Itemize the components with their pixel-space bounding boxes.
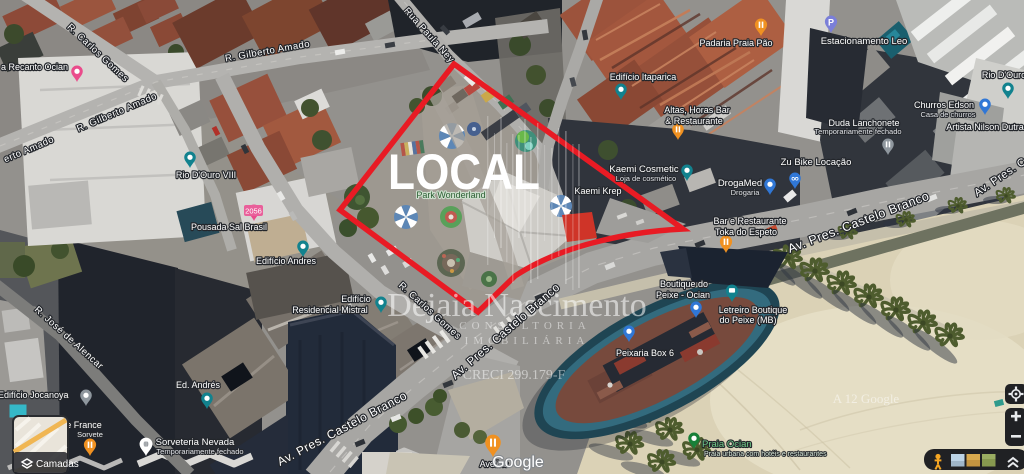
svg-text:Praia urbana com hotéis e rest: Praia urbana com hotéis e restaurantes (704, 451, 827, 458)
svg-text:P: P (828, 17, 834, 27)
svg-text:Pousada Sal Brasil: Pousada Sal Brasil (191, 222, 267, 232)
svg-text:Temporariamente fechado: Temporariamente fechado (156, 447, 243, 456)
svg-text:Peixe - Ocian: Peixe - Ocian (656, 290, 710, 300)
svg-text:Zu Bike Locação: Zu Bike Locação (781, 157, 852, 168)
svg-text:Loja de cosmético: Loja de cosmético (616, 174, 676, 183)
svg-text:Letreiro Boutique: Letreiro Boutique (719, 305, 788, 315)
svg-text:Residencial Mistral: Residencial Mistral (292, 305, 368, 315)
svg-text:& Restaurante: & Restaurante (665, 116, 723, 126)
svg-text:Rio D'Ouro: Rio D'Ouro (982, 70, 1024, 80)
svg-text:Boutique do: Boutique do (660, 279, 708, 289)
svg-text:Edifício: Edifício (341, 294, 371, 304)
svg-text:Bar e Restaurante: Bar e Restaurante (713, 216, 786, 226)
svg-text:Rio D'Ouro VIII: Rio D'Ouro VIII (176, 170, 236, 180)
svg-text:Ed. Andrés: Ed. Andrés (176, 380, 221, 390)
svg-text:a Recanto Ocian: a Recanto Ocian (1, 62, 68, 72)
svg-text:Artista Nilson Dutra: Artista Nilson Dutra (946, 122, 1024, 132)
svg-text:Kaemi Krep: Kaemi Krep (574, 186, 621, 196)
svg-text:e France: e France (66, 420, 102, 430)
svg-text:Park Wonderland: Park Wonderland (416, 190, 485, 200)
svg-text:Toka do Espeto: Toka do Espeto (715, 227, 777, 237)
svg-text:Padaria Praia Pão: Padaria Praia Pão (699, 38, 772, 48)
svg-text:Altas, Horas Bar: Altas, Horas Bar (664, 105, 730, 115)
svg-text:Edifício Andres: Edifício Andres (256, 256, 317, 266)
svg-text:Churros Edson: Churros Edson (914, 100, 974, 110)
svg-text:2056: 2056 (245, 207, 262, 216)
svg-text:Google: Google (492, 454, 544, 471)
svg-text:Estacionamento Leo: Estacionamento Leo (821, 36, 908, 47)
svg-text:Drogaria: Drogaria (731, 188, 761, 197)
svg-text:do Peixe (MB): do Peixe (MB) (719, 315, 776, 325)
svg-text:Edifício Itaparica: Edifício Itaparica (610, 72, 677, 82)
svg-text:Sorvete: Sorvete (77, 430, 103, 439)
svg-text:A 12 Google: A 12 Google (833, 391, 900, 406)
svg-text:Peixaria Box 6: Peixaria Box 6 (616, 348, 674, 358)
svg-text:Praia Ocian: Praia Ocian (702, 439, 752, 450)
svg-text:Edifício Jocanoya: Edifício Jocanoya (0, 390, 69, 400)
svg-text:Casa de churros: Casa de churros (920, 110, 975, 119)
svg-text:Temporariamente fechado: Temporariamente fechado (814, 127, 901, 136)
svg-text:Camadas: Camadas (36, 459, 79, 470)
svg-text:CRECI 299.179-F: CRECI 299.179-F (463, 368, 566, 383)
